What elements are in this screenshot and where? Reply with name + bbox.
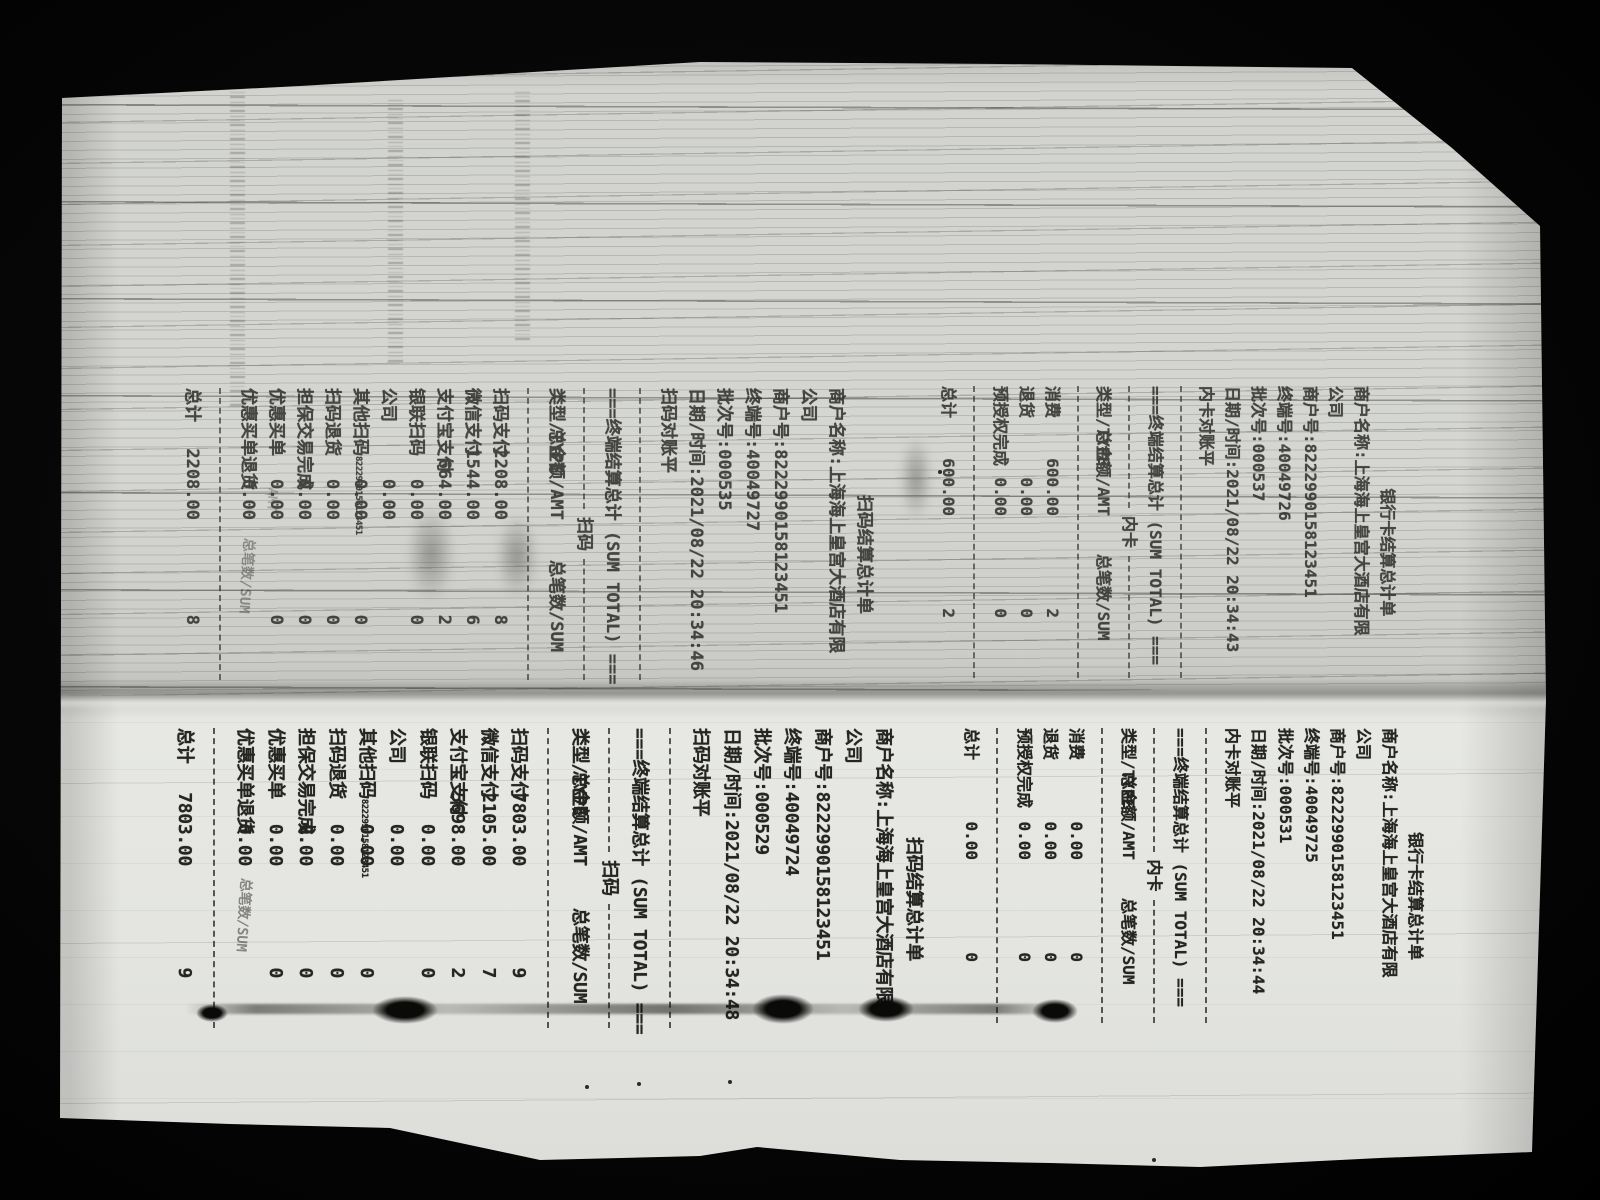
- row-amount: 0.00: [318, 388, 346, 520]
- row-count: 0: [411, 926, 441, 978]
- ink-smudge: [894, 422, 938, 534]
- receipt-header-line: 公司: [837, 728, 867, 1028]
- row-amount: 0.00: [351, 728, 381, 866]
- row-amount: 7803.00: [168, 728, 198, 866]
- column-header-row: 类型/TYPE总金额/AMT总笔数/SUM: [1090, 386, 1116, 678]
- dashed-separator: [984, 728, 1010, 1023]
- data-row: 公司0.00: [374, 388, 402, 680]
- receipt-scan-code-settlement-bottom: 扫码结算总计单商户名称:上海海上皇宫大酒店有限公司商户号:82229901581…: [168, 728, 928, 1028]
- row-count: 2: [1039, 566, 1065, 618]
- ink-blot: [858, 996, 914, 1022]
- dashed-separator: [533, 728, 563, 1028]
- data-row: 担保交易完成0.000: [290, 728, 320, 1028]
- row-count: 6: [458, 573, 486, 625]
- receipt-header-line: 公司: [1323, 386, 1349, 678]
- section-divider: 扫码: [570, 388, 598, 680]
- receipt-paper: 银行卡结算总计单商户名称:上海海上皇宫大酒店有限公司商户号:8222990158…: [0, 0, 1600, 1200]
- row-amount: 2105.00: [472, 728, 502, 866]
- receipt-header-line: 批次号:000537: [1245, 386, 1271, 678]
- dashed-separator: [961, 386, 987, 678]
- data-row: 优惠买单0.000: [262, 388, 290, 680]
- receipt-header-line: 日期/时间:2021/08/22 20:34:43: [1219, 386, 1245, 678]
- data-row: 银联扫码0.000: [411, 728, 441, 1028]
- row-amount: 0.00: [1013, 386, 1039, 516]
- dashed-separator: [206, 388, 234, 680]
- col-amount: 总金额/AMT: [563, 728, 593, 866]
- speck: [1152, 1158, 1156, 1162]
- data-row: 优惠买单0.000: [259, 728, 289, 1028]
- dashed-separator: [1168, 386, 1194, 678]
- row-count: 0: [259, 926, 289, 978]
- receipt-header-line: 商户名称:上海海上皇宫大酒店有限: [822, 388, 850, 680]
- data-row: 其他扫码82229901581234510.000: [346, 388, 374, 680]
- data-row: 消费0.000: [1063, 728, 1089, 1023]
- dashed-separator: [1193, 728, 1219, 1023]
- receipt-header-line: 终端号:40049724: [776, 728, 806, 1028]
- data-row: 扫码支付7803.009: [503, 728, 533, 1028]
- row-amount: 0.00: [290, 388, 318, 520]
- row-amount: 0.00: [1037, 728, 1063, 860]
- row-amount: 0.00: [234, 388, 262, 520]
- column-header-row: 类型/TYPE总金额/AMT总笔数/SUM: [563, 728, 593, 1028]
- col-count: 总笔数/SUM: [542, 560, 570, 680]
- terminal-sum-total-line: ===终端结算总计 (SUM TOTAL) ===: [598, 388, 626, 680]
- receipt-header-line: 商户名称:上海海上皇宫大酒店有限: [1348, 386, 1374, 678]
- receipt-title: 银行卡结算总计单: [1402, 728, 1428, 1023]
- receipt-header-line: 商户号:8222990158123451: [1297, 386, 1323, 678]
- data-row: 消费600.002: [1039, 386, 1065, 678]
- receipt-header-line: 商户号:8222990158123451: [806, 728, 836, 1028]
- row-count: 0: [262, 573, 290, 625]
- receipt-header-line: 日期/时间:2021/08/22 20:34:48: [715, 728, 745, 1028]
- row-amount: 2208.00: [178, 388, 206, 520]
- data-row: 担保交易完成0.000: [290, 388, 318, 680]
- col-amount: 总金额/AMT: [542, 388, 570, 520]
- section-label: 扫码: [570, 517, 598, 551]
- row-amount: 7803.00: [503, 728, 533, 866]
- total-row: 总计0.000: [958, 728, 984, 1023]
- row-amount: 0.00: [1063, 728, 1089, 860]
- data-row: 扫码退货0.000: [318, 388, 346, 680]
- data-row: 扫码退货0.000: [320, 728, 350, 1028]
- row-count: 0: [346, 573, 374, 625]
- data-row: 预授权完成0.000: [987, 386, 1013, 678]
- section-divider: 内卡: [1141, 728, 1167, 1023]
- dashed-separator: [1065, 386, 1091, 678]
- row-count: 0: [318, 573, 346, 625]
- ghost-print-amt-label: AMT: [263, 488, 280, 512]
- col-amount: 总金额/AMT: [1090, 386, 1116, 516]
- row-amount: 5698.00: [442, 728, 472, 866]
- row-count: 0: [1037, 910, 1063, 962]
- row-count: 0: [1063, 910, 1089, 962]
- terminal-sum-total-line: ===终端结算总计 (SUM TOTAL) ===: [624, 728, 654, 1028]
- row-count: 9: [503, 926, 533, 978]
- ink-blot: [372, 996, 438, 1024]
- section-label: 内卡: [1141, 860, 1167, 892]
- data-row: 退货0.000: [1037, 728, 1063, 1023]
- photo-of-settlement-receipts: { "photo":{"background":"#080808","paper…: [0, 0, 1600, 1200]
- row-count: 0: [290, 573, 318, 625]
- receipt-header-line: 终端号:40049726: [1271, 386, 1297, 678]
- row-amount: 0.00: [411, 728, 441, 866]
- ink-smudge: [398, 490, 464, 618]
- speck: [637, 1082, 641, 1086]
- receipt-header-line: 商户号:8222990158123451: [1324, 728, 1350, 1023]
- row-amount: 2208.00: [486, 388, 514, 520]
- ghost-print-column: [388, 100, 403, 362]
- row-count: 0: [351, 926, 381, 978]
- ghost-print-column: [515, 88, 530, 340]
- row-count: 0: [987, 566, 1013, 618]
- ink-blot: [752, 994, 814, 1024]
- row-count: 0: [1011, 910, 1037, 962]
- dashed-separator: [199, 728, 229, 1028]
- row-amount: 0.00: [381, 728, 411, 866]
- row-amount: 0.00: [987, 386, 1013, 516]
- col-count: 总笔数/SUM: [1115, 898, 1141, 1018]
- column-header-row: 类型/TYPE总金额/AMT总笔数/SUM: [542, 388, 570, 680]
- ink-streak: [185, 1004, 1065, 1014]
- speck: [938, 470, 942, 474]
- receipt-header-line: 扫码对账平: [654, 388, 682, 680]
- row-count: 8: [178, 573, 206, 625]
- col-amount: 总金额/AMT: [1115, 728, 1141, 860]
- receipt-title: 银行卡结算总计单: [1374, 386, 1400, 678]
- receipt-header-line: 内卡对账平: [1219, 728, 1245, 1023]
- row-count: 0: [1013, 566, 1039, 618]
- row-count: 2: [442, 926, 472, 978]
- row-count: 0: [958, 910, 984, 962]
- data-row: 预授权完成0.000: [1011, 728, 1037, 1023]
- row-amount: 0.00: [229, 728, 259, 866]
- col-count: 总笔数/SUM: [1090, 554, 1116, 674]
- row-count: 7: [472, 926, 502, 978]
- receipt-title: 扫码结算总计单: [850, 388, 878, 680]
- receipt-bank-card-settlement-bottom: 银行卡结算总计单商户名称:上海海上皇宫大酒店有限公司商户号:8222990158…: [958, 728, 1428, 1023]
- row-amount: 0.00: [1011, 728, 1037, 860]
- section-divider: 扫码: [594, 728, 624, 1028]
- receipt-header-line: 日期/时间:2021/08/22 20:34:46: [682, 388, 710, 680]
- row-count: 0: [290, 926, 320, 978]
- receipt-bank-card-settlement-top: 银行卡结算总计单商户名称:上海海上皇宫大酒店有限公司商户号:8222990158…: [935, 386, 1400, 678]
- total-row: 总计7803.009: [168, 728, 198, 1028]
- row-amount: 0.00: [259, 728, 289, 866]
- receipt-header-line: 内卡对账平: [1194, 386, 1220, 678]
- data-row: 优惠买单退货0.00: [234, 388, 262, 680]
- dashed-separator: [626, 388, 654, 680]
- receipt-header-line: 扫码对账平: [685, 728, 715, 1028]
- row-amount: 0.00: [346, 388, 374, 520]
- row-count: 9: [168, 926, 198, 978]
- data-row: 支付宝支付5698.002: [442, 728, 472, 1028]
- ghost-print-column: [230, 88, 245, 406]
- section-divider: 内卡: [1116, 386, 1142, 678]
- speck: [585, 1085, 589, 1089]
- speck: [728, 1080, 732, 1084]
- receipt-header-line: 终端号:40049727: [738, 388, 766, 680]
- section-label: 扫码: [594, 860, 624, 895]
- receipt-header-line: 批次号:000535: [710, 388, 738, 680]
- receipt-header-line: 日期/时间:2021/08/22 20:34:44: [1245, 728, 1271, 1023]
- ink-smudge: [488, 500, 546, 612]
- dashed-separator: [654, 728, 684, 1028]
- row-amount: 600.00: [936, 386, 962, 516]
- data-row: 其他扫码82229901581234510.000: [351, 728, 381, 1028]
- row-count: 2: [936, 566, 962, 618]
- ink-blot: [196, 1004, 228, 1022]
- receipt-header-line: 批次号:000529: [746, 728, 776, 1028]
- receipt-header-line: 公司: [794, 388, 822, 680]
- data-row: 微信支付2105.007: [472, 728, 502, 1028]
- dashed-separator: [1089, 728, 1115, 1023]
- total-row: 总计600.002: [936, 386, 962, 678]
- row-amount: 1544.00: [458, 388, 486, 520]
- total-row: 总计2208.008: [178, 388, 206, 680]
- row-amount: 600.00: [1039, 386, 1065, 516]
- row-amount: 0.00: [374, 388, 402, 520]
- receipt-header-line: 终端号:40049725: [1298, 728, 1324, 1023]
- data-row: 公司0.00: [381, 728, 411, 1028]
- receipt-header-line: 商户号:8222990158123451: [766, 388, 794, 680]
- fold-crease: [55, 680, 1547, 710]
- terminal-sum-total-line: ===终端结算总计 (SUM TOTAL) ===: [1167, 728, 1193, 1023]
- column-header-row: 类型/TYPE总金额/AMT总笔数/SUM: [1115, 728, 1141, 1023]
- row-amount: 0.00: [290, 728, 320, 866]
- receipt-header-line: 商户名称:上海海上皇宫大酒店有限: [867, 728, 897, 1028]
- receipt-title: 扫码结算总计单: [898, 728, 928, 1028]
- receipt-header-line: 批次号:000531: [1271, 728, 1297, 1023]
- ink-blot: [1032, 999, 1078, 1023]
- row-count: 0: [320, 926, 350, 978]
- row-amount: 0.00: [320, 728, 350, 866]
- receipt-header-line: 商户名称:上海海上皇宫大酒店有限: [1376, 728, 1402, 1023]
- data-row: 退货0.000: [1013, 386, 1039, 678]
- section-label: 内卡: [1116, 516, 1142, 548]
- row-amount: 0.00: [958, 728, 984, 860]
- receipt-header-line: 公司: [1350, 728, 1376, 1023]
- terminal-sum-total-line: ===终端结算总计 (SUM TOTAL) ===: [1142, 386, 1168, 678]
